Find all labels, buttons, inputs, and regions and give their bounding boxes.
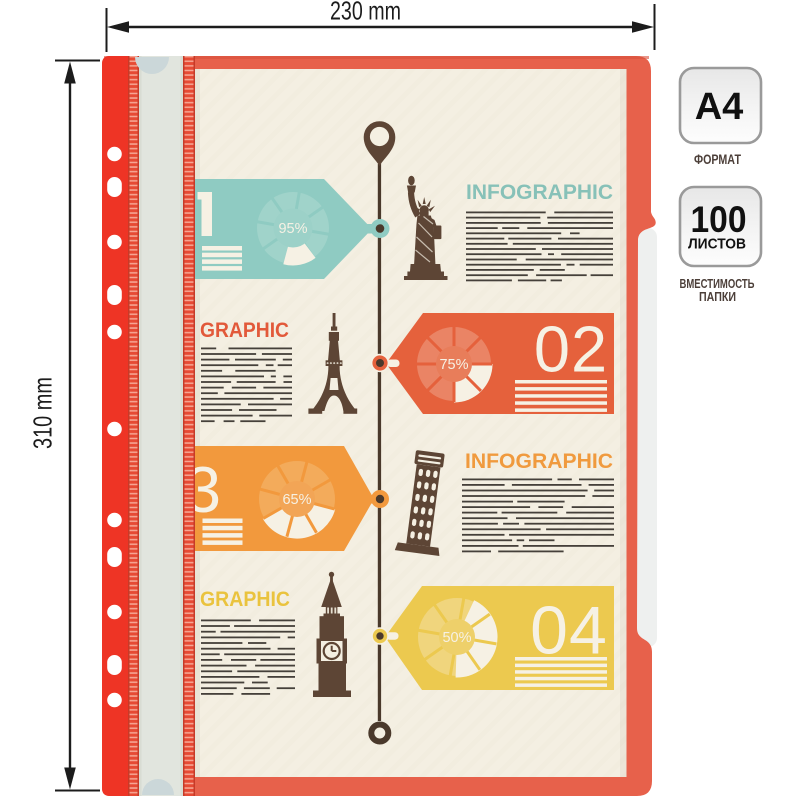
- svg-text:310 mm: 310 mm: [28, 377, 58, 449]
- svg-text:ЛИСТОВ: ЛИСТОВ: [688, 237, 746, 253]
- svg-text:95%: 95%: [278, 221, 307, 237]
- svg-text:ПАПКИ: ПАПКИ: [699, 290, 736, 304]
- svg-text:ФОРМАТ: ФОРМАТ: [694, 152, 742, 167]
- svg-text:INFOGRAPHIC: INFOGRAPHIC: [466, 181, 613, 204]
- svg-text:230 mm: 230 mm: [330, 0, 401, 26]
- svg-text:INFOGRAPHIC: INFOGRAPHIC: [465, 450, 613, 473]
- svg-text:75%: 75%: [439, 357, 468, 373]
- svg-text:ВМЕСТИМОСТЬ: ВМЕСТИМОСТЬ: [680, 277, 755, 291]
- svg-text:100: 100: [691, 199, 747, 240]
- svg-text:GRAPHIC: GRAPHIC: [200, 588, 290, 611]
- svg-text:A4: A4: [695, 86, 744, 128]
- svg-text:02: 02: [534, 313, 608, 386]
- svg-text:50%: 50%: [442, 630, 471, 646]
- svg-text:GRAPHIC: GRAPHIC: [200, 319, 289, 342]
- svg-text:65%: 65%: [282, 492, 311, 508]
